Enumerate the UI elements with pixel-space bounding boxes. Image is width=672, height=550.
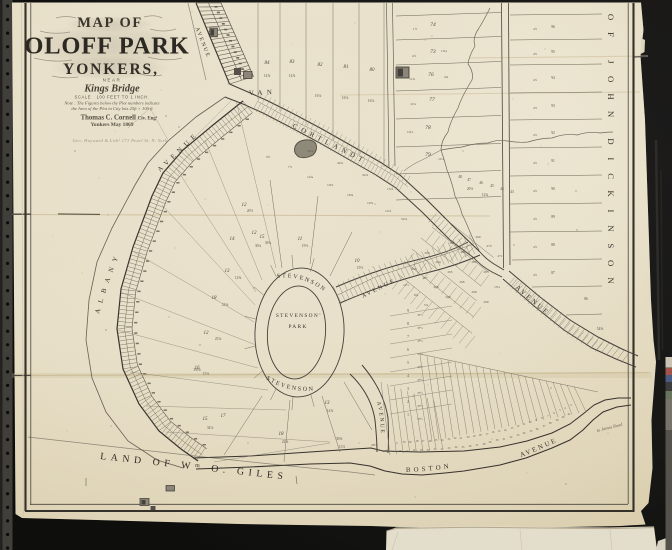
svg-text:54⅜: 54⅜: [597, 327, 604, 331]
svg-text:91: 91: [551, 159, 555, 163]
svg-text:86: 86: [584, 297, 588, 301]
svg-text:4½: 4½: [533, 273, 538, 277]
svg-text:12¾: 12¾: [482, 193, 489, 197]
svg-text:12: 12: [242, 203, 248, 208]
svg-text:OLOFF PARK: OLOFF PARK: [24, 33, 189, 60]
svg-text:80: 80: [370, 68, 376, 73]
svg-text:15⅛: 15⅛: [387, 187, 394, 191]
svg-text:J: J: [606, 60, 616, 64]
svg-text:I: I: [606, 157, 616, 160]
svg-text:207: 207: [423, 276, 428, 280]
svg-text:280: 280: [450, 241, 455, 245]
svg-text:I: I: [606, 210, 616, 213]
svg-text:9: 9: [407, 309, 409, 313]
svg-text:13⅛: 13⅛: [441, 49, 447, 53]
svg-text:94: 94: [551, 76, 555, 80]
svg-text:7½: 7½: [288, 165, 293, 169]
svg-text:13⅛: 13⅛: [494, 285, 500, 289]
svg-text:39​16: 39​16: [193, 368, 200, 372]
svg-text:Kings Bridge: Kings Bridge: [83, 84, 140, 95]
svg-text:96: 96: [551, 25, 555, 29]
svg-text:YONKERS,: YONKERS,: [63, 61, 159, 78]
svg-text:37½: 37½: [417, 352, 423, 356]
svg-text:NEAR: NEAR: [103, 78, 122, 83]
svg-text:270: 270: [487, 244, 492, 248]
svg-text:PARK: PARK: [288, 324, 307, 330]
svg-text:37½: 37½: [417, 365, 423, 369]
svg-text:15: 15: [260, 235, 266, 240]
svg-text:7: 7: [407, 335, 409, 339]
svg-text:295: 295: [448, 270, 453, 274]
svg-text:30⅜: 30⅜: [336, 437, 343, 441]
svg-text:14: 14: [230, 237, 236, 242]
svg-text:296: 296: [460, 280, 465, 284]
svg-text:18¾: 18¾: [347, 193, 354, 197]
svg-text:17: 17: [221, 414, 227, 419]
svg-text:STEVENSON’: STEVENSON’: [276, 313, 322, 319]
svg-text:SCALE 100 FEET TO 1 INCH.: SCALE 100 FEET TO 1 INCH.: [74, 95, 149, 100]
svg-text:21⅜: 21⅜: [222, 303, 229, 307]
svg-text:10⅞: 10⅞: [367, 201, 374, 205]
svg-text:283: 283: [484, 270, 489, 274]
svg-text:44⅞: 44⅞: [337, 161, 344, 165]
svg-text:4½: 4½: [533, 245, 538, 249]
svg-text:10⅛: 10⅛: [327, 183, 334, 187]
svg-text:11⅛: 11⅛: [410, 102, 416, 106]
svg-text:20½: 20½: [247, 209, 254, 213]
svg-text:8: 8: [407, 322, 409, 326]
svg-text:Geo. Hayward & Lith¹ 171 Pearl: Geo. Hayward & Lith¹ 171 Pearl St. N. Yo…: [73, 138, 168, 143]
svg-text:54⅞: 54⅞: [401, 217, 408, 221]
svg-text:N: N: [606, 225, 616, 232]
svg-text:27½: 27½: [383, 449, 389, 453]
svg-text:10: 10: [355, 259, 361, 264]
svg-text:C: C: [606, 173, 616, 179]
svg-text:D: D: [606, 138, 616, 144]
svg-text:Yonkers May 1869: Yonkers May 1869: [91, 122, 134, 128]
svg-text:12⅛: 12⅛: [385, 209, 392, 213]
svg-text:83: 83: [290, 60, 296, 65]
svg-text:44: 44: [500, 187, 504, 191]
svg-text:73: 73: [430, 49, 436, 55]
svg-text:N: N: [606, 277, 616, 284]
svg-text:14⅛: 14⅛: [407, 130, 413, 134]
svg-text:1: 1: [407, 413, 409, 417]
svg-text:6¾: 6¾: [414, 293, 419, 297]
svg-text:11⅛: 11⅛: [438, 157, 444, 161]
svg-text:13⅓: 13⅓: [339, 445, 346, 449]
svg-text:206: 206: [412, 267, 417, 271]
svg-text:81: 81: [344, 65, 349, 70]
svg-text:19½: 19½: [302, 244, 309, 248]
svg-text:271: 271: [498, 254, 503, 258]
svg-text:37½: 37½: [417, 404, 423, 408]
svg-text:5¼: 5¼: [424, 303, 429, 307]
svg-text:37½: 37½: [417, 326, 423, 330]
svg-text:209: 209: [446, 295, 451, 299]
svg-text:95: 95: [551, 50, 555, 54]
svg-text:N: N: [606, 111, 616, 118]
svg-text:MAP OF: MAP OF: [77, 15, 143, 31]
svg-text:15½: 15½: [203, 372, 210, 376]
svg-text:O: O: [606, 260, 616, 266]
svg-text:11: 11: [298, 237, 303, 242]
svg-text:3: 3: [407, 387, 409, 391]
svg-text:37½: 37½: [417, 391, 423, 395]
svg-text:90: 90: [551, 187, 555, 191]
svg-text:16⅛: 16⅛: [342, 96, 349, 100]
svg-text:88: 88: [551, 243, 555, 247]
svg-text:34⅞: 34⅞: [362, 173, 369, 177]
svg-text:18: 18: [279, 432, 285, 437]
svg-text:O: O: [606, 14, 616, 20]
svg-text:20½: 20½: [467, 187, 474, 191]
svg-text:84: 84: [265, 61, 271, 66]
svg-text:37½: 37½: [417, 313, 423, 317]
svg-text:14⅞: 14⅞: [289, 74, 296, 78]
svg-text:34⅞: 34⅞: [307, 149, 314, 153]
svg-text:14⅞: 14⅞: [264, 74, 271, 78]
svg-text:93: 93: [551, 104, 555, 108]
svg-text:the Area of the Plot in City l: the Area of the Plot in City lots 25ft ×…: [71, 106, 153, 111]
svg-text:293: 293: [425, 251, 430, 255]
svg-text:23⅛: 23⅛: [215, 337, 222, 341]
svg-text:4½: 4½: [533, 189, 538, 193]
svg-text:76: 76: [428, 72, 434, 78]
svg-text:4½: 4½: [533, 217, 538, 221]
svg-text:H: H: [606, 93, 616, 100]
svg-text:11¾: 11¾: [409, 77, 415, 81]
svg-text:30¼: 30¼: [265, 241, 272, 245]
svg-text:299: 299: [484, 300, 489, 304]
svg-text:12⅜: 12⅜: [235, 276, 242, 280]
svg-text:12: 12: [204, 331, 210, 336]
svg-text:12: 12: [252, 231, 258, 236]
svg-text:4¾: 4¾: [444, 75, 449, 79]
svg-text:46: 46: [479, 181, 483, 185]
svg-text:16⅛: 16⅛: [368, 99, 375, 103]
svg-text:14⅞: 14⅞: [327, 409, 334, 413]
svg-text:78: 78: [425, 125, 431, 131]
svg-text:30¼: 30¼: [255, 244, 262, 248]
svg-text:89: 89: [551, 215, 555, 219]
svg-text:4½: 4½: [412, 54, 417, 58]
svg-text:1½: 1½: [413, 27, 418, 31]
svg-text:74: 74: [430, 22, 436, 28]
svg-text:16⅛: 16⅛: [315, 94, 322, 98]
svg-text:79: 79: [425, 152, 431, 158]
svg-text:45: 45: [490, 184, 494, 188]
svg-text:4½: 4½: [533, 52, 538, 56]
svg-text:26½: 26½: [371, 443, 377, 447]
svg-text:4½: 4½: [533, 161, 538, 165]
svg-text:19½: 19½: [357, 266, 364, 270]
svg-text:294: 294: [436, 260, 441, 264]
svg-text:Note : The Figures below the P: Note : The Figures below the Plot number…: [63, 101, 159, 106]
svg-text:77: 77: [429, 97, 435, 103]
svg-text:281: 281: [461, 250, 466, 254]
svg-text:K: K: [606, 190, 616, 197]
svg-text:2: 2: [407, 400, 409, 404]
svg-text:34⅛: 34⅛: [207, 426, 214, 430]
svg-text:48: 48: [458, 175, 462, 179]
svg-text:4½: 4½: [533, 78, 538, 82]
svg-text:18: 18: [212, 296, 218, 301]
svg-text:208: 208: [434, 285, 439, 289]
svg-text:4½: 4½: [533, 133, 538, 137]
svg-text:6: 6: [407, 348, 409, 352]
svg-text:O: O: [606, 76, 616, 82]
svg-text:22⅜: 22⅜: [282, 440, 289, 444]
svg-text:13: 13: [325, 401, 331, 406]
svg-text:47: 47: [467, 178, 471, 182]
svg-text:87: 87: [551, 271, 555, 275]
svg-text:VAN: VAN: [249, 89, 277, 97]
svg-text:298: 298: [472, 290, 477, 294]
svg-text:5: 5: [407, 361, 409, 365]
svg-text:12½: 12½: [403, 283, 409, 287]
svg-text:14¾: 14¾: [307, 175, 314, 179]
svg-text:4: 4: [407, 374, 409, 378]
svg-text:S: S: [606, 243, 616, 248]
svg-text:37½: 37½: [417, 378, 423, 382]
svg-text:15: 15: [203, 417, 209, 422]
svg-text:3½: 3½: [266, 155, 271, 159]
svg-text:F: F: [606, 32, 616, 37]
svg-text:13: 13: [225, 269, 231, 274]
svg-text:37½: 37½: [417, 339, 423, 343]
svg-text:43: 43: [510, 190, 514, 194]
svg-text:4½: 4½: [533, 27, 538, 31]
svg-text:82: 82: [318, 63, 324, 68]
svg-text:282: 282: [472, 260, 477, 264]
svg-text:269: 269: [476, 235, 481, 239]
svg-text:Thomas C. Cornell Civ. Eng¹: Thomas C. Cornell Civ. Eng¹: [81, 115, 158, 122]
svg-text:37½: 37½: [417, 417, 423, 421]
svg-text:4½: 4½: [533, 106, 538, 110]
svg-text:92: 92: [551, 131, 555, 135]
